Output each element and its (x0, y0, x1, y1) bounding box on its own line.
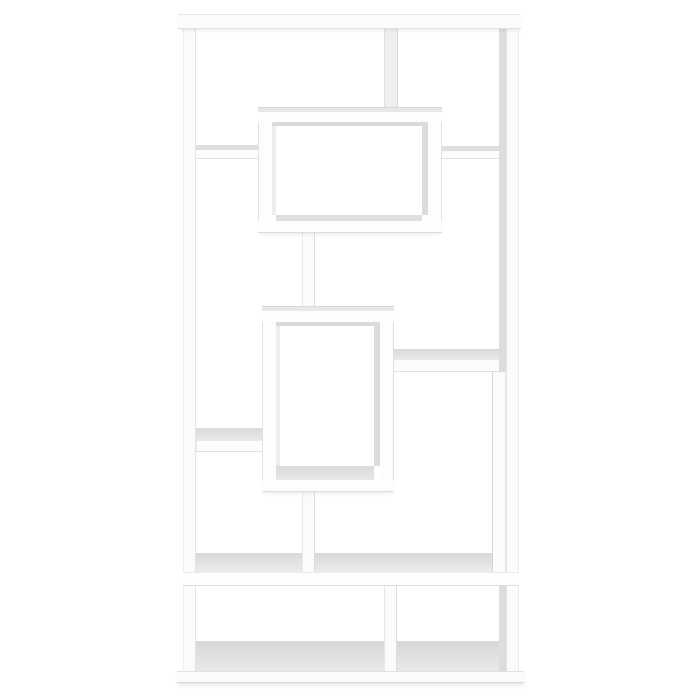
mid-left-shelf-front (196, 441, 262, 452)
upper-right-shelf-front (442, 151, 499, 159)
middle-shelf-top-face (196, 553, 499, 572)
upper-box-ceiling-edge (272, 122, 428, 126)
lower-center-post (302, 492, 315, 572)
base-board (177, 671, 524, 683)
bottom-floor-right (397, 641, 499, 672)
lower-box-right-wall (380, 306, 394, 492)
upper-box-right-inner-face (422, 126, 428, 215)
bottom-floor-left (196, 641, 384, 672)
mid-left-shelf-top-face (196, 428, 262, 441)
upper-center-post (302, 233, 315, 311)
upper-left-shelf-front (196, 150, 258, 159)
lower-box-bottom-front (262, 480, 394, 492)
mid-right-shelf-front (394, 360, 499, 372)
lower-box-top-front (262, 311, 394, 322)
lower-box-ceiling-edge (276, 322, 380, 326)
right-hanging-divider (492, 372, 506, 572)
lower-box-left-wall (262, 306, 276, 492)
middle-shelf-front (183, 572, 519, 586)
bookcase-product-image (0, 0, 700, 700)
top-section-divider (384, 29, 398, 109)
upper-box-bottom-front (258, 221, 442, 233)
mid-right-shelf-top-face (394, 349, 499, 360)
upper-box-top-front (258, 112, 442, 122)
upper-box-left-inner-face (272, 126, 276, 215)
bottom-section-divider (384, 586, 397, 671)
lower-box-left-inner-face (276, 326, 280, 466)
top-board (178, 14, 521, 29)
upper-box-right-wall (428, 107, 442, 233)
lower-box-floor-face (276, 466, 374, 480)
upper-box-left-wall (258, 107, 272, 233)
lower-box-right-inner-face (374, 326, 380, 466)
